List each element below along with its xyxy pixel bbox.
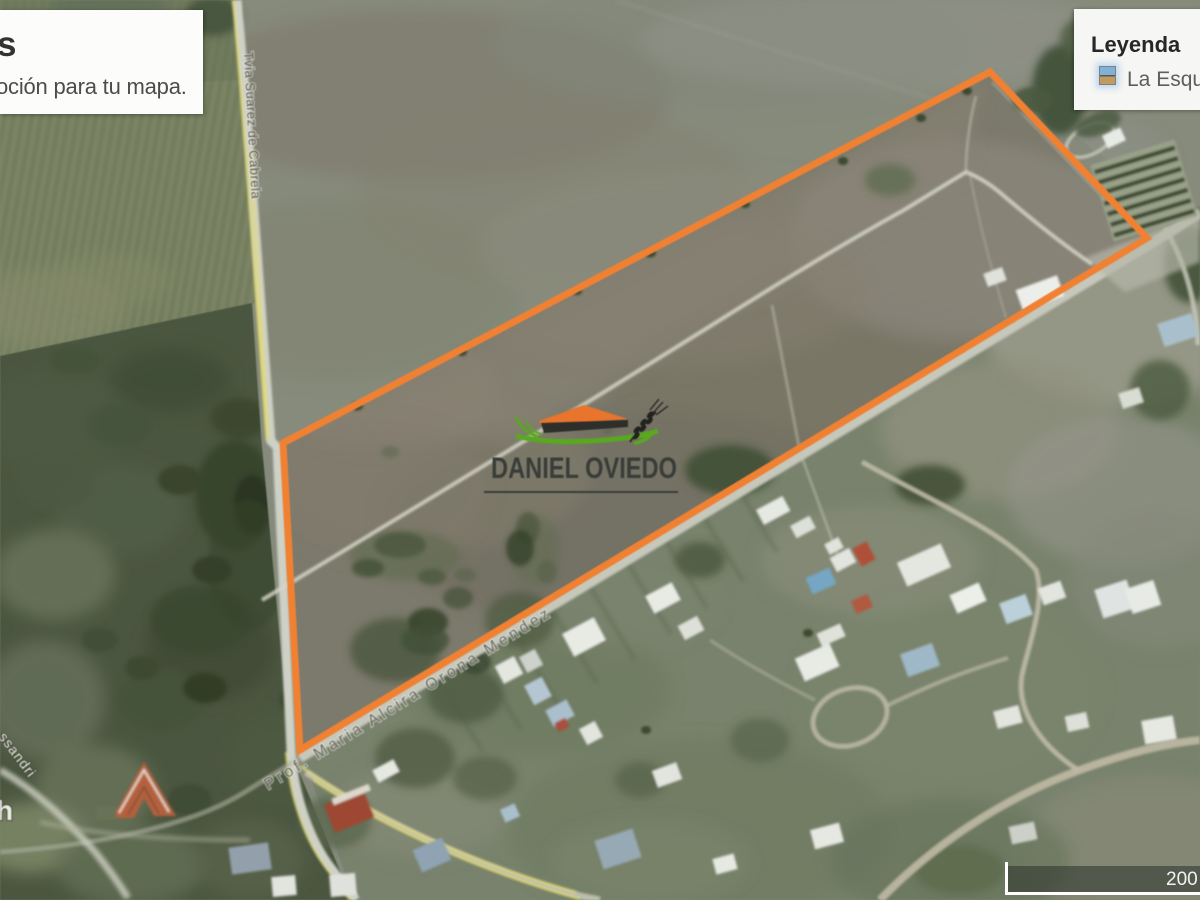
svg-text:DANIEL OVIEDO: DANIEL OVIEDO — [491, 452, 677, 485]
svg-text:h: h — [0, 795, 13, 826]
